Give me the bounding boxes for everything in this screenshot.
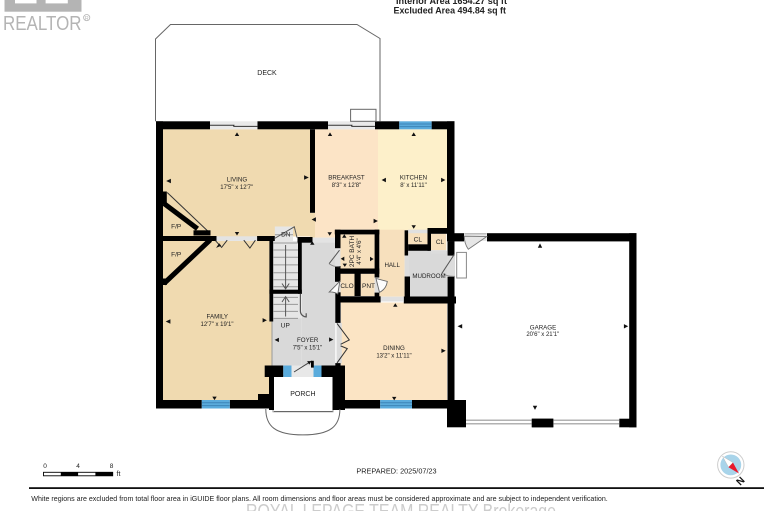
svg-text:CLO: CLO <box>340 283 353 290</box>
svg-text:DINING: DINING <box>383 345 405 352</box>
svg-text:Excluded Area 494.84 sq ft: Excluded Area 494.84 sq ft <box>394 6 507 17</box>
svg-text:PORCH: PORCH <box>290 391 315 398</box>
svg-text:20'6" x 21'1": 20'6" x 21'1" <box>526 332 559 338</box>
svg-text:17'5" x 12'7": 17'5" x 12'7" <box>220 185 253 191</box>
svg-text:FOYER: FOYER <box>297 337 319 344</box>
svg-text:UP: UP <box>281 323 290 330</box>
svg-text:8'3" x 12'8": 8'3" x 12'8" <box>332 183 362 189</box>
svg-text:PNT: PNT <box>362 283 375 290</box>
svg-text:8: 8 <box>110 463 114 470</box>
svg-text:4'4" x 4'6": 4'4" x 4'6" <box>357 238 363 264</box>
svg-text:FAMILY: FAMILY <box>207 313 229 320</box>
svg-text:12'7" x 19'1": 12'7" x 19'1" <box>201 322 234 328</box>
svg-text:R: R <box>85 16 89 22</box>
svg-text:DN: DN <box>281 231 291 238</box>
svg-text:MUDROOM: MUDROOM <box>412 273 445 280</box>
svg-text:ROYAL LEPAGE TEAM REALTY Broke: ROYAL LEPAGE TEAM REALTY Brokerage <box>246 501 556 511</box>
svg-text:GARAGE: GARAGE <box>530 324 556 331</box>
svg-text:KITCHEN: KITCHEN <box>400 174 427 181</box>
svg-text:REALTOR: REALTOR <box>3 12 82 35</box>
svg-text:F/P: F/P <box>171 223 181 230</box>
svg-text:CL: CL <box>436 239 445 246</box>
svg-text:0: 0 <box>43 463 47 470</box>
svg-text:13'2" x 11'11": 13'2" x 11'11" <box>376 354 411 360</box>
svg-text:ft: ft <box>117 471 121 478</box>
svg-text:7'5" x 15'1": 7'5" x 15'1" <box>293 345 323 351</box>
svg-text:CL: CL <box>414 236 423 243</box>
svg-text:LIVING: LIVING <box>227 176 247 183</box>
svg-text:DECK: DECK <box>257 70 277 77</box>
svg-text:PREPARED: 2025/07/23: PREPARED: 2025/07/23 <box>356 466 436 475</box>
svg-text:8' x 11'11": 8' x 11'11" <box>400 183 427 189</box>
svg-text:F/P: F/P <box>171 251 181 258</box>
svg-text:HALL: HALL <box>384 262 400 269</box>
svg-text:2PC BATH: 2PC BATH <box>349 236 356 268</box>
svg-text:BREAKFAST: BREAKFAST <box>328 175 365 182</box>
svg-text:4: 4 <box>76 463 80 470</box>
